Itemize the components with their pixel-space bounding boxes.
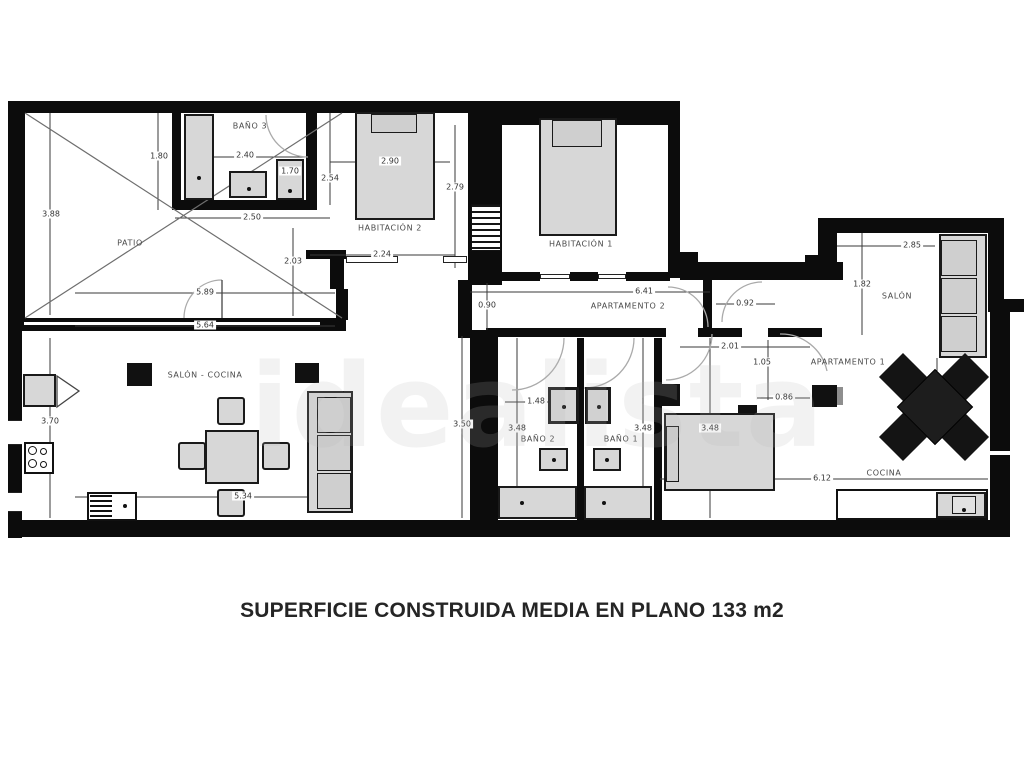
x-table-set <box>886 360 986 456</box>
dimension-label: 5.64 <box>194 321 216 330</box>
dimension-label: 2.01 <box>719 342 741 351</box>
dimension-label: 0.90 <box>476 301 498 310</box>
dimension-label: 1.82 <box>851 280 873 289</box>
column <box>295 363 319 383</box>
chair <box>262 442 290 470</box>
bed <box>539 118 617 236</box>
window <box>8 492 22 512</box>
room-label: COCINA <box>867 469 902 478</box>
window <box>8 420 22 445</box>
dimension-label: 1.48 <box>525 397 547 406</box>
dimension-label: 2.50 <box>241 213 263 222</box>
toilet <box>276 159 304 200</box>
door-arcs <box>57 115 827 407</box>
dimension-label: 5.34 <box>232 492 254 501</box>
dimension-label: 1.80 <box>148 152 170 161</box>
room-label: HABITACIÓN 1 <box>549 240 613 249</box>
dimension-label: 6.41 <box>633 287 655 296</box>
dimension-label: 3.88 <box>40 210 62 219</box>
bathroom-sink <box>585 387 611 424</box>
pier-bedroom-left <box>660 384 680 406</box>
room-label: SALÓN <box>882 292 912 301</box>
dimension-label: 5.89 <box>194 288 216 297</box>
sink-cabinet <box>87 492 137 521</box>
sofa <box>307 391 353 513</box>
dimension-label: 2.03 <box>282 257 304 266</box>
dimension-label: 6.12 <box>811 474 833 483</box>
bathroom-sink <box>229 171 267 198</box>
toilet <box>593 448 621 471</box>
pillow <box>371 114 417 133</box>
plan-lines-layer <box>0 0 1024 768</box>
dimension-label: 3.48 <box>632 424 654 433</box>
dimension-label: 1.05 <box>751 358 773 367</box>
kitchen-sink <box>936 492 986 518</box>
sofa <box>939 234 987 358</box>
room-label: BAÑO 2 <box>521 435 555 444</box>
hab1-door-leaf-2 <box>598 274 626 279</box>
dining-table <box>205 430 259 484</box>
column <box>127 363 152 386</box>
room-label: BAÑO 1 <box>604 435 638 444</box>
dimension-label: 2.79 <box>444 183 466 192</box>
room-label: SALÓN - COCINA <box>168 371 243 380</box>
dimension-label: 2.85 <box>901 241 923 250</box>
room-label: HABITACIÓN 2 <box>358 224 422 233</box>
dimension-label: 3.50 <box>451 420 473 429</box>
plan-caption: SUPERFICIE CONSTRUIDA MEDIA EN PLANO 133… <box>240 599 784 623</box>
tv-unit <box>812 385 837 407</box>
dimension-label: 0.92 <box>734 299 756 308</box>
chair <box>217 397 245 425</box>
room-label: BAÑO 3 <box>233 122 267 131</box>
cooktop <box>24 442 54 474</box>
tv-unit-side <box>837 387 843 405</box>
toilet <box>539 448 568 471</box>
bathroom-sink <box>548 387 579 424</box>
room-label: APARTAMENTO 1 <box>811 358 886 367</box>
dimension-label: 2.24 <box>371 250 393 259</box>
floor-plan: PATIOBAÑO 3HABITACIÓN 2HABITACIÓN 1APART… <box>0 0 1024 768</box>
room-label: APARTAMENTO 2 <box>591 302 666 311</box>
dimension-label: 2.54 <box>319 174 341 183</box>
bed <box>355 112 435 220</box>
dimension-label: 1.70 <box>279 167 301 176</box>
dimension-label: 3.48 <box>699 424 721 433</box>
headboard <box>666 426 679 482</box>
bathtub <box>184 114 214 200</box>
chair <box>178 442 206 470</box>
bathtub <box>584 486 652 520</box>
dimension-label: 2.90 <box>379 157 401 166</box>
hab1-door-leaf-1 <box>540 274 570 279</box>
hab2-door-leaf-2 <box>443 256 467 263</box>
dimension-label: 2.40 <box>234 151 256 160</box>
bathtub <box>498 486 577 519</box>
dimension-label: 0.86 <box>773 393 795 402</box>
dimension-label: 3.70 <box>39 417 61 426</box>
fridge-door-swing <box>57 376 79 407</box>
dimension-label: 3.48 <box>506 424 528 433</box>
fridge <box>23 374 56 407</box>
pillow <box>552 120 602 147</box>
room-label: PATIO <box>117 239 143 248</box>
